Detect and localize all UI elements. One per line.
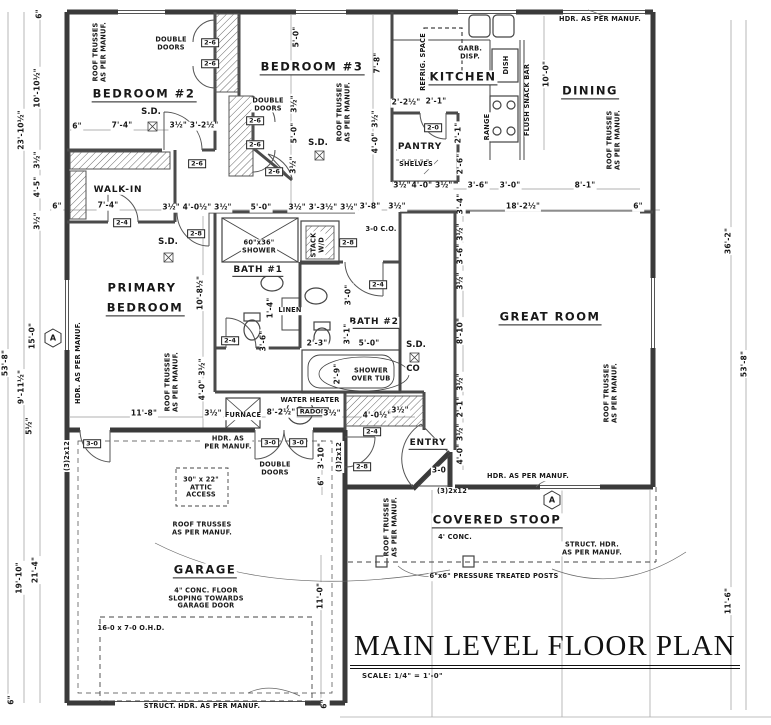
annotation-label: HDR. AS PER MANUF.	[203, 435, 252, 450]
dimension-label: 3'-4"	[457, 193, 466, 216]
dimension-label: 6"	[8, 694, 17, 706]
annotation-label: SHELVES	[398, 161, 434, 169]
dimension-label: 3½" 3'-3½" 3½"	[287, 204, 358, 213]
dimension-label: 3½" 3'-2½"	[168, 122, 219, 131]
room-label-walk-in: WALK-IN	[93, 185, 144, 195]
dimension-label: 2'-6"	[457, 153, 466, 176]
dimension-label: 10'-0"	[543, 60, 552, 88]
dimension-label: 53'-8"	[741, 350, 750, 378]
door-size-tag: 2-6	[246, 116, 264, 125]
dimension-label: 3½"	[290, 155, 299, 175]
dimension-label: 6"	[632, 203, 644, 212]
smoke-detector-label: S.D.	[140, 108, 162, 118]
dimension-label: 3½"	[392, 182, 412, 191]
title-block: MAIN LEVEL FLOOR PLAN SCALE: 1/4" = 1'-0…	[350, 630, 740, 680]
room-label-dining: DINING	[561, 84, 619, 99]
dimension-label: 3½"	[457, 222, 466, 242]
dimension-label: 18'-2½"	[505, 203, 541, 212]
door-size-tag: 2-6	[265, 167, 283, 176]
annotation-label: ROOF TRUSSES AS PER MANUF.	[171, 521, 233, 536]
dimension-label: 2'-1"	[425, 98, 448, 107]
drawing-title: MAIN LEVEL FLOOR PLAN	[350, 630, 740, 669]
annotation-label: 4' CONC.	[437, 534, 473, 542]
annotation-label: FURNACE	[224, 412, 262, 420]
door-size-tag: 3-0	[261, 438, 279, 447]
dimension-label: 3½"	[390, 407, 410, 416]
floor-plan-sheet: BEDROOM #2BEDROOM #3KITCHENDININGPANTRYW…	[0, 0, 771, 725]
annotation-label: WATER HEATER	[279, 397, 340, 405]
section-marker: A	[49, 333, 57, 342]
annotation-label: ROOF TRUSSES AS PER MANUF.	[383, 496, 398, 558]
dimension-label: 3'-1"	[344, 323, 353, 346]
smoke-detector-label: S.D.	[157, 238, 179, 248]
dimension-label: 6"	[71, 123, 83, 132]
door-size-tag: 2-0	[424, 123, 442, 132]
annotation-label: ROOF TRUSSES AS PER MANUF.	[603, 362, 618, 424]
dimension-label: 1'-4"	[267, 297, 276, 320]
dimension-label: 2'-9"	[334, 363, 343, 386]
dimension-label: 2'-3"	[306, 340, 329, 349]
dimension-label: 2'-2½"	[391, 99, 422, 108]
dimension-label: 2'-1"	[455, 122, 464, 145]
annotation-label: LINEN	[277, 307, 302, 315]
dimension-label: 3½"	[34, 150, 43, 170]
dimension-label: 5'-0"	[358, 340, 381, 349]
smoke-detector-label: S.D.	[307, 139, 329, 149]
dimension-label: 4'-0" 3½"	[457, 422, 466, 465]
room-label-bath-1: BATH #1	[232, 265, 283, 277]
room-label-garage: GARAGE	[173, 563, 237, 578]
door-size-tag: 2-6	[246, 140, 264, 149]
annotation-label: FLUSH SNACK BAR	[524, 63, 532, 137]
door-size-tag: 2-6	[201, 59, 219, 68]
room-label-covered-stoop: COVERED STOOP	[432, 513, 563, 528]
annotation-label: 16-0 x 7-0 O.H.D.	[97, 625, 166, 633]
dimension-label: 3'-0"	[499, 182, 522, 191]
dimension-label: 10'-10½"	[34, 67, 43, 109]
dimension-label: 3-0	[431, 467, 447, 476]
dimension-label: 3'-8"	[359, 203, 382, 212]
annotation-label: GARB. DISP.	[457, 45, 483, 60]
dimension-label: 6"	[318, 475, 327, 487]
dimension-label: 10'-8½"	[197, 275, 206, 311]
dimension-label: 5'-0"	[291, 122, 300, 145]
drawing-scale: SCALE: 1/4" = 1'-0"	[362, 672, 740, 680]
room-label-primary-bedroom: PRIMARY	[107, 281, 178, 294]
door-size-tag: 3-0	[289, 438, 307, 447]
dimension-label: 8'-2½"	[266, 409, 297, 418]
door-size-tag: 2-6	[201, 38, 219, 47]
room-label-pantry: PANTRY	[397, 142, 443, 152]
room-label-bath-2: BATH #2	[348, 317, 399, 329]
dimension-label: 9'-11½"	[18, 369, 27, 405]
dimension-label: 3½"	[291, 94, 300, 114]
annotation-label: SHOWER OVER TUB	[351, 367, 392, 382]
dimension-label: 6"	[321, 698, 330, 710]
door-size-tag: 2-4	[113, 218, 131, 227]
annotation-label: DOUBLE DOORS	[258, 461, 291, 476]
dimension-label: 11'-8"	[130, 410, 158, 419]
dimension-label: 4'-0" 3½"	[410, 182, 453, 191]
annotation-label: STRUCT. HDR. AS PER MANUF.	[143, 703, 261, 711]
annotation-label: (3)2x12	[64, 440, 72, 472]
annotation-label: 4" CONC. FLOOR SLOPING TOWARDS GARAGE DO…	[167, 588, 244, 611]
annotation-label: HDR. AS PER MANUF.	[558, 16, 642, 24]
dimension-label: 3'-10"	[318, 442, 327, 470]
plan-labels-layer: BEDROOM #2BEDROOM #3KITCHENDININGPANTRYW…	[0, 0, 771, 725]
dimension-label: 3½"	[322, 410, 342, 419]
room-label-entry: ENTRY	[409, 438, 448, 450]
dimension-label: 8'-10"	[457, 317, 466, 345]
dimension-label: 3'-6"	[457, 243, 466, 266]
annotation-label: HDR. AS PER MANUF.	[486, 473, 570, 481]
dimension-label: 53'-8"	[2, 349, 11, 377]
room-label-primary-bedroom-2: BEDROOM	[106, 301, 185, 316]
door-size-tag: 2-4	[369, 280, 387, 289]
dimension-label: 4'-0½"	[362, 412, 393, 421]
smoke-detector-label: S.D.	[405, 341, 427, 351]
dimension-label: 3'-0"	[345, 284, 354, 307]
dimension-label: 4'-5"	[34, 176, 43, 199]
dimension-label: 3½"	[199, 357, 208, 377]
door-size-tag: 2-8	[187, 229, 205, 238]
annotation-label: DISH	[503, 55, 511, 76]
annotation-label: (3)2x12	[436, 488, 468, 496]
room-label-kitchen: KITCHEN	[428, 70, 497, 85]
dimension-label: 3½"	[457, 271, 466, 291]
door-size-tag: 3-0	[83, 439, 101, 448]
annotation-label: 6"x6" PRESSURE TREATED POSTS	[429, 573, 560, 581]
dimension-label: 4'-0"	[199, 379, 208, 402]
dimension-label: 3½"	[203, 410, 223, 419]
annotation-label: 3-0 C.O.	[364, 226, 397, 234]
dimension-label: 11'-6"	[725, 587, 734, 615]
annotation-label: ROOF TRUSSES AS PER MANUF.	[606, 109, 621, 171]
dimension-label: 5'-0"	[250, 204, 273, 213]
annotation-label: RANGE	[484, 113, 492, 142]
room-label-bedroom-2: BEDROOM #2	[92, 87, 197, 102]
dimension-label: 23'-10½"	[18, 109, 27, 151]
dimension-label: 5½"	[26, 416, 35, 436]
dimension-label: 11'-0"	[317, 582, 326, 610]
annotation-label: REFRIG. SPACE	[420, 32, 428, 92]
dimension-label: 36'-2"	[725, 227, 734, 255]
door-size-tag: 2-4	[363, 427, 381, 436]
dimension-label: 3½" 4'-0½" 3½"	[161, 204, 232, 213]
annotation-label: ROOF TRUSSES AS PER MANUF.	[92, 21, 107, 83]
dimension-label: 3'-6"	[467, 182, 490, 191]
door-size-tag: 2-8	[339, 238, 357, 247]
dimension-label: 2'-1"	[457, 396, 466, 419]
annotation-label: ROOF TRUSSES AS PER MANUF.	[164, 351, 179, 413]
dimension-label: 8'-1"	[574, 182, 597, 191]
annotation-label: 30" x 22" ATTIC ACCESS	[182, 477, 220, 500]
dimension-label: 3½"	[372, 109, 381, 129]
dimension-label: 7'-4"	[111, 122, 134, 131]
dimension-label: 15'-0"	[29, 322, 38, 350]
annotation-label: STACK W/D	[310, 232, 325, 259]
dimension-label: 19'-10"	[16, 561, 25, 595]
dimension-label: 6"	[51, 203, 63, 212]
dimension-label: 4'-0"	[372, 132, 381, 155]
annotation-label: 60"x36" SHOWER	[241, 239, 277, 254]
dimension-label: 7'-4"	[97, 202, 120, 211]
annotation-label: HDR. AS PER MANUF.	[75, 321, 83, 405]
dimension-label: 3½"	[457, 372, 466, 392]
annotation-label: DOUBLE DOORS	[251, 97, 284, 112]
annotation-label: (3)2x12	[336, 441, 344, 473]
smoke-detector-label: CO	[405, 365, 420, 375]
dimension-label: 3½"	[387, 203, 407, 212]
dimension-label: 21'-4"	[32, 556, 41, 584]
annotation-label: DOUBLE DOORS	[154, 36, 187, 51]
section-marker: A	[548, 495, 556, 504]
door-size-tag: 2-8	[353, 462, 371, 471]
annotation-label: STRUCT. HDR. AS PER MANUF.	[561, 541, 623, 556]
room-label-great-room: GREAT ROOM	[499, 310, 602, 325]
door-size-tag: 2-6	[188, 159, 206, 168]
dimension-label: 3'-6"	[260, 330, 269, 353]
annotation-label: ROOF TRUSSES AS PER MANUF.	[336, 81, 351, 143]
room-label-bedroom-3: BEDROOM #3	[260, 60, 365, 75]
dimension-label: 6"	[36, 8, 45, 20]
door-size-tag: 2-4	[221, 336, 239, 345]
dimension-label: 7'-8"	[374, 52, 383, 75]
dimension-label: 5'-0"	[293, 26, 302, 49]
dimension-label: 3½"	[34, 211, 43, 231]
